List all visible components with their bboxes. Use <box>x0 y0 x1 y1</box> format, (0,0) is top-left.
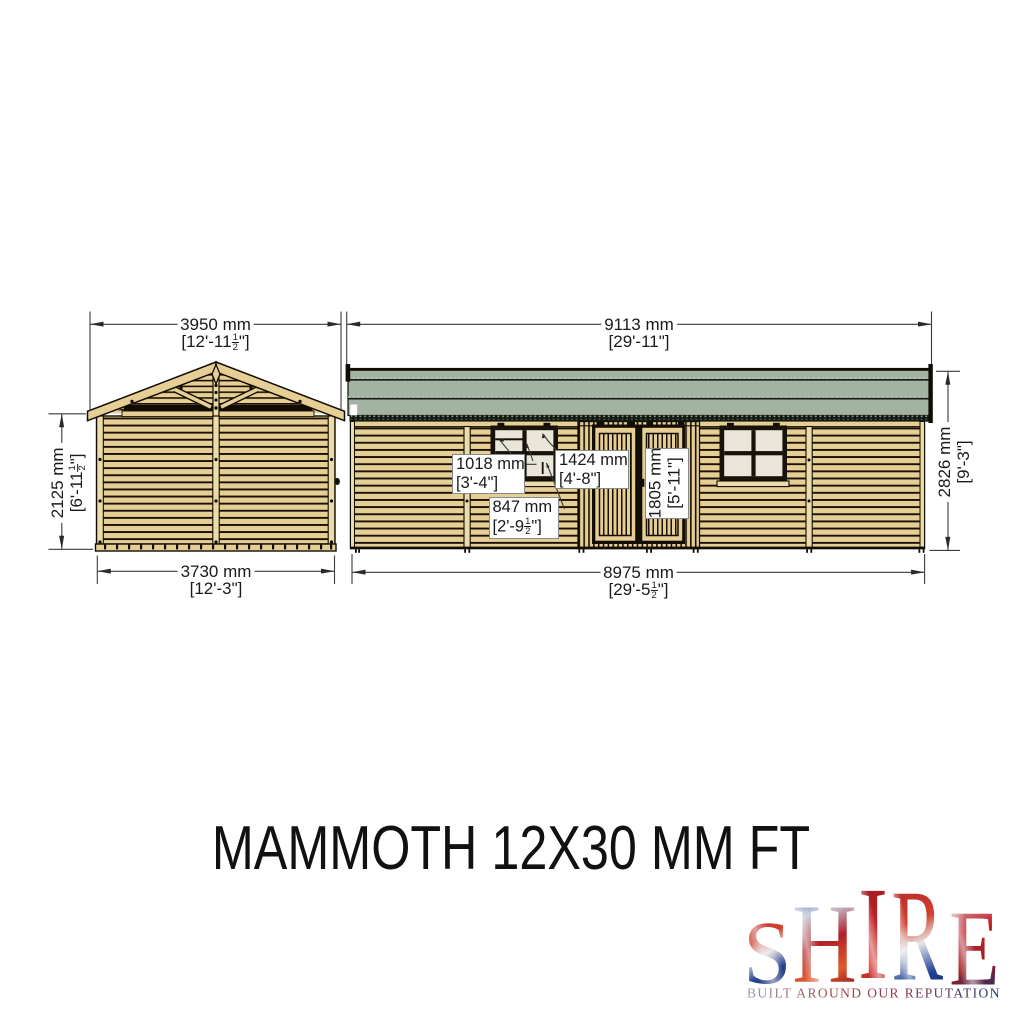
svg-text:BUILT AROUND OUR REPUTATION: BUILT AROUND OUR REPUTATION <box>747 986 1001 1001</box>
